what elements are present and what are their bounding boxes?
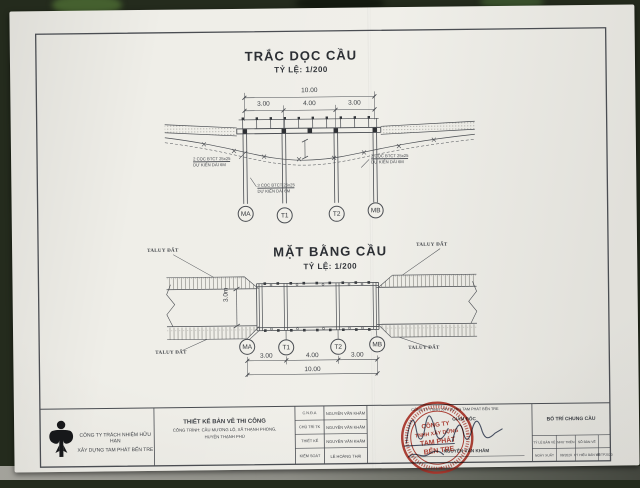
paper-sheet: TRẮC DỌC CẦU TỶ LỆ: 1/200 10.00 3.00 4.0… xyxy=(0,0,640,484)
company-seal-stamp: CÔNG TY TNHH XÂY DỰNG TAM PHÁT BẾN TRE ★ xyxy=(391,392,483,484)
handwritten-signatures xyxy=(0,0,640,484)
stamp-star-icon: ★ xyxy=(439,465,445,472)
photo-of-bridge-drawing: { "section": { "title": "TRẮC DỌC CẦU", … xyxy=(0,0,640,480)
